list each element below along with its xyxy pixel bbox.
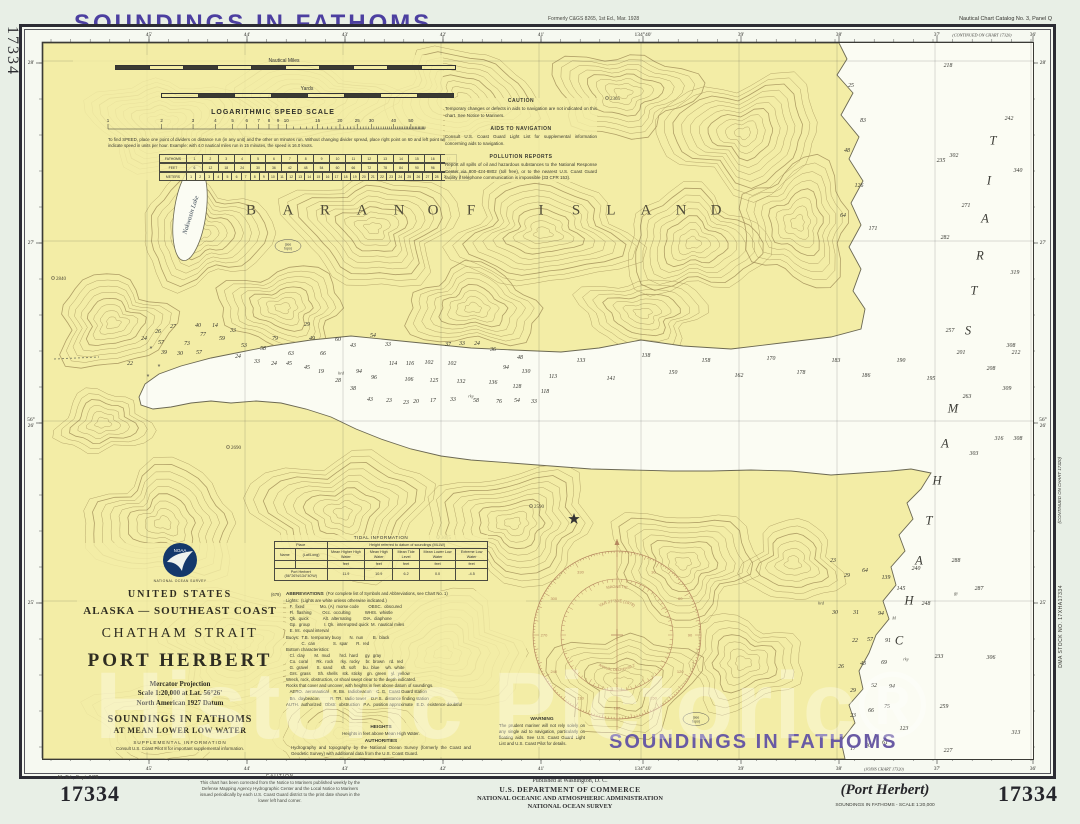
sounding: 263 (963, 394, 972, 400)
footer-caution-block: CAUTION This chart has been corrected fr… (196, 774, 364, 805)
svg-text:180: 180 (614, 706, 621, 711)
chart-number-bottom-right: 17334 (998, 781, 1058, 807)
sounding: 24 (235, 354, 241, 360)
conversion-cell: 66 (346, 163, 362, 172)
conversion-cell: 28 (433, 172, 442, 181)
tidal-row-name: Port Herbert (56°26'N/134°40'W) (275, 568, 328, 580)
sounding: 106 (405, 377, 414, 383)
conversion-cell: 96 (425, 163, 441, 172)
sounding: 139 (882, 575, 891, 581)
strait-name-letter: R (976, 249, 984, 264)
strait-name-letter: T (926, 514, 933, 529)
latitude-label-left: 25' (28, 600, 35, 606)
sounding: 45 (304, 365, 310, 371)
nm-bar-segment (387, 65, 422, 70)
conversion-cell: 12 (287, 172, 296, 181)
conversion-cell: 18 (342, 172, 351, 181)
sounding: 201 (957, 350, 966, 356)
sounding: 48 (517, 355, 523, 361)
tidal-col-latlong: (Lat/Long) (295, 549, 327, 561)
sounding: 130 (522, 369, 531, 375)
latitude-label-right: 28' (1040, 60, 1047, 66)
longitude-label-bottom: 39' (738, 766, 745, 772)
sounding: 94 (889, 684, 895, 690)
heights-body: Heights in feet above Mean High Water. (291, 731, 471, 737)
strait-name-letter: S (965, 324, 971, 339)
sounding: 30 (832, 610, 838, 616)
tidal-col-header: Mean High Water (365, 549, 393, 561)
sounding: 30 (177, 351, 183, 357)
island-name-letter: A (641, 203, 652, 220)
latitude-label-left: 28' (28, 60, 35, 66)
sounding: 319 (1011, 270, 1020, 276)
sounding: 145 (897, 586, 906, 592)
conversion-row-label: FEET (159, 163, 187, 172)
conversion-cell: 11 (278, 172, 287, 181)
svg-text:270: 270 (541, 633, 548, 638)
sounding: 308 (1007, 343, 1016, 349)
sounding: 48 (844, 148, 850, 154)
longitude-label-bottom: 134°40' (635, 766, 652, 772)
sounding: 57 (196, 350, 202, 356)
tidal-col-name: Name (275, 549, 296, 561)
title-soundings-2: AT MEAN LOWER LOW WATER (77, 726, 283, 735)
svg-text:15: 15 (315, 118, 321, 123)
tidal-value-cell: 6.2 (393, 568, 420, 580)
conversion-cell: 60 (330, 163, 346, 172)
latitude-label-right: 27' (1040, 240, 1047, 246)
footer-scale-line: SOUNDINGS IN FATHOMS - SCALE 1:20,000 (790, 803, 980, 808)
sounding: 212 (1012, 350, 1021, 356)
sounding: 43 (367, 397, 373, 403)
sounding: 91 (885, 638, 891, 644)
svg-text:330: 330 (577, 569, 584, 574)
tidal-value-cell: 11.9 (327, 568, 365, 580)
conversion-cell: 24 (235, 163, 251, 172)
aids-title: AIDS TO NAVIGATION (445, 126, 597, 132)
sounding: 64 (840, 213, 846, 219)
sounding: 23 (403, 400, 409, 406)
sounding: 128 (513, 384, 522, 390)
sounding: 233 (935, 654, 944, 660)
svg-text:240: 240 (550, 669, 557, 674)
sounding: 302 (950, 153, 959, 159)
noaa-logo: NOAA (163, 543, 197, 577)
aids-body: Consult U.S. Coast Guard Light List for … (445, 134, 597, 147)
catalog-note: Nautical Chart Catalog No. 3, Panel Q (959, 16, 1052, 22)
island-name-letter: D (711, 203, 722, 220)
conversion-cell: 21 (369, 172, 378, 181)
svg-text:3: 3 (192, 118, 195, 123)
sounding: 64 (862, 568, 868, 574)
title-projection: Mercator Projection Scale 1:20,000 at La… (77, 680, 283, 708)
title-strait: CHATHAM STRAIT (77, 626, 283, 642)
sounding: 69 (881, 660, 887, 666)
strait-name-letter: A (941, 437, 949, 452)
conversion-cell: 1 (187, 154, 203, 163)
sounding: 218 (944, 63, 953, 69)
sounding: 126 (855, 183, 864, 189)
conversion-cell: 9 (314, 154, 330, 163)
sounding: 31 (853, 610, 859, 616)
svg-text:50: 50 (408, 118, 414, 123)
sounding: 43 (350, 343, 356, 349)
sounding: 19 (318, 369, 324, 375)
latitude-label-left: 27' (28, 240, 35, 246)
longitude-label-top: 37' (934, 32, 941, 38)
conversion-row: METERS1234567891011121314151617181920212… (159, 172, 469, 181)
svg-text:8: 8 (268, 118, 271, 123)
conversion-cell: 3 (205, 172, 214, 181)
sounding: 33 (230, 328, 236, 334)
sounding: 63 (288, 351, 294, 357)
island-name-letter: R (320, 203, 330, 220)
strait-name-letter: T (990, 134, 997, 149)
svg-text:2690: 2690 (231, 446, 242, 451)
island-name-letter: S (572, 203, 580, 220)
svg-text:*: * (147, 374, 150, 381)
longitude-label-bottom: 37' (934, 766, 941, 772)
svg-text:6: 6 (245, 118, 248, 123)
port-herbert-subtitle: (Port Herbert) (790, 782, 980, 799)
abbreviations-lines: Lights: (Lights are white unless otherwi… (286, 598, 526, 708)
supplemental-body: Consult U.S. Coast Pilot 8 for important… (77, 746, 283, 752)
strait-name-letter: H (904, 594, 913, 609)
tidal-unit-cell: feet (456, 561, 488, 568)
sounding: 83 (860, 118, 866, 124)
conversion-cell: 13 (378, 154, 394, 163)
conversion-cell: 15 (409, 154, 425, 163)
sounding: 73 (184, 341, 190, 347)
island-name-letter: F (467, 203, 475, 220)
supplemental-title: SUPPLEMENTAL INFORMATION (77, 740, 283, 745)
sounding: 20 (413, 399, 419, 405)
island-name-letter: N (394, 203, 405, 220)
sounding: 183 (832, 358, 841, 364)
bottom-type-label: hrd (818, 601, 824, 606)
tidal-unit-blank (275, 561, 296, 568)
tidal-unit-cell: feet (419, 561, 455, 568)
svg-text:40: 40 (391, 118, 397, 123)
yards-bar-segment (198, 93, 236, 98)
sounding: 53 (241, 343, 247, 349)
strait-name-letter: M (948, 402, 958, 417)
continued-note-top: (CONTINUED ON CHART 17320) (952, 33, 1011, 38)
sounding: 306 (987, 655, 996, 661)
svg-text:NOAA: NOAA (174, 548, 187, 553)
tidal-unit-cell: feet (365, 561, 393, 568)
sounding: 49 (309, 336, 315, 342)
conversion-row: FEET6121824303642485460667278849096102 (159, 163, 469, 172)
svg-text:25: 25 (355, 118, 361, 123)
sounding: 287 (975, 586, 984, 592)
svg-text:*: * (158, 364, 161, 371)
nm-bar-segment (183, 65, 218, 70)
authorities-body: Hydrography and topography by the Nation… (291, 745, 471, 757)
conversion-cell: 16 (323, 172, 332, 181)
island-name-letter: A (283, 203, 294, 220)
longitude-label-bottom: 42' (440, 766, 447, 772)
conversion-cell: 16 (425, 154, 441, 163)
bottom-type-label: gy (954, 591, 958, 596)
conversion-cell: 11 (346, 154, 362, 163)
sounding: 178 (797, 370, 806, 376)
log-speed-scale-ruler: 12345678910152025304050 (73, 117, 443, 137)
conversion-cell: 1 (187, 172, 196, 181)
sounding: 94 (356, 369, 362, 375)
chart-number-bottom-left: 17334 (60, 781, 120, 807)
conversion-row: FATHOMS1234567891011121314151617 (159, 154, 469, 163)
sounding: 28 (335, 378, 341, 384)
nm-bar-segment (115, 65, 150, 70)
sounding: 162 (735, 373, 744, 379)
nos-line: NATIONAL OCEAN SURVEY (415, 803, 725, 810)
conversion-cell: 27 (423, 172, 432, 181)
longitude-label-top: 39' (738, 32, 745, 38)
conversion-cell: 17 (333, 172, 342, 181)
log-speed-scale-title: LOGARITHMIC SPEED SCALE (211, 109, 335, 116)
sounding: 248 (922, 601, 931, 607)
nm-bar-segment (251, 65, 286, 70)
sounding: 102 (425, 360, 434, 366)
sounding: 282 (941, 235, 950, 241)
authorities-title: AUTHORITIES (291, 739, 471, 744)
conversion-cell: 24 (396, 172, 405, 181)
published-at: Published at Washington, D. C. (415, 778, 725, 784)
sounding: 24 (271, 361, 277, 367)
sounding: 242 (1005, 116, 1014, 122)
sounding: 23 (386, 398, 392, 404)
sounding: 60 (335, 337, 341, 343)
sounding: 29 (844, 573, 850, 579)
sounding: 58 (260, 346, 266, 352)
notes-column: CAUTION Temporary changes or defects in … (445, 98, 597, 182)
sounding: 259 (940, 704, 949, 710)
sounding: 190 (897, 358, 906, 364)
sounding: 22 (127, 361, 133, 367)
sounding: 38 (350, 386, 356, 392)
svg-text:10: 10 (284, 118, 290, 123)
sounding: 54 (514, 398, 520, 404)
bottom-type-label: rky (468, 394, 474, 399)
tidal-col-header: Mean Tide Level (393, 549, 420, 561)
conversion-cell: 18 (219, 163, 235, 172)
sounding: 132 (457, 379, 466, 385)
tidal-unit-cell: feet (393, 561, 420, 568)
heights-authorities-block: HEIGHTS Heights in feet above Mean High … (291, 723, 471, 757)
sounding: 308 (1014, 436, 1023, 442)
sounding: 66 (868, 708, 874, 714)
sounding: 33 (459, 341, 465, 347)
sounding: 77 (200, 332, 206, 338)
longitude-label-top: 44' (244, 32, 251, 38)
title-port-name: PORT HERBERT (77, 650, 283, 672)
sounding: 23 (830, 558, 836, 564)
sounding: 26 (155, 329, 161, 335)
latitude-label-right: 25' (1040, 600, 1047, 606)
conversion-cell: 2 (196, 172, 205, 181)
tidal-value-cell: 0.0 (419, 568, 455, 580)
sounding: 79 (272, 336, 278, 342)
conversion-cell: 30 (251, 163, 267, 172)
sounding: 118 (541, 389, 549, 395)
dma-stock-number: DMA STOCK NO. 17XHA17334 (1058, 585, 1064, 668)
sounding: 235 (937, 158, 946, 164)
sounding: 40 (195, 323, 201, 329)
strait-name-letter: A (981, 212, 989, 227)
yards-bar-segment (307, 93, 345, 98)
sounding: 316 (995, 436, 1004, 442)
conversion-cell: 84 (394, 163, 410, 172)
projection-line: Mercator Projection (77, 680, 283, 689)
longitude-label-top: 45' (146, 32, 153, 38)
conversion-cell: 9 (260, 172, 269, 181)
nm-bar-segment (319, 65, 354, 70)
sounding: 150 (669, 370, 678, 376)
nm-bar-segment (217, 65, 252, 70)
sounding: 33 (531, 399, 537, 405)
title-soundings-1: SOUNDINGS IN FATHOMS (77, 714, 283, 725)
nm-bar-segment (421, 65, 456, 70)
svg-text:30: 30 (651, 569, 656, 574)
noaa-line: NATIONAL OCEANIC AND ATMOSPHERIC ADMINIS… (415, 795, 725, 802)
bottom-type-label: hrd (338, 371, 344, 376)
tidal-footnote: (679) (271, 592, 281, 597)
bottom-type-label: M (892, 616, 896, 621)
tidal-information-table: TIDAL INFORMATION Place Height referred … (274, 535, 488, 581)
conversion-cell: 4 (214, 172, 223, 181)
tidal-height-header: Height referred to datum of soundings (M… (327, 542, 488, 549)
sounding: 170 (767, 356, 776, 362)
sounding: 123 (900, 726, 909, 732)
sounding: 33 (385, 342, 391, 348)
sounding: 23 (850, 713, 856, 719)
conversion-cell: 20 (360, 172, 369, 181)
island-name-letter: N (676, 203, 687, 220)
sounding: 288 (952, 558, 961, 564)
conversion-cell: 48 (298, 163, 314, 172)
sounding: 141 (607, 376, 616, 382)
log-speed-scale-note: To find SPEED, place one point of divide… (108, 137, 456, 150)
sounding: 138 (642, 353, 651, 359)
yards-bar-segment (234, 93, 272, 98)
sounding: 96 (371, 375, 377, 381)
bottom-type-label: rky (903, 657, 909, 662)
svg-text:2: 2 (160, 118, 163, 123)
warning-title: WARNING (499, 717, 585, 722)
strait-name-letter: H (932, 474, 941, 489)
yards-bar-segment (161, 93, 199, 98)
nautical-miles-label: Nautical Miles (268, 58, 299, 64)
nautical-chart-sheet: SOUNDINGS IN FATHOMS Formerly C&GS 8265,… (0, 0, 1080, 824)
sounding: 133 (577, 358, 586, 364)
caution-title: CAUTION (445, 98, 597, 104)
sounding: 22 (852, 638, 858, 644)
sounding: 94 (878, 611, 884, 617)
tidal-caption: TIDAL INFORMATION (274, 535, 488, 540)
tidal-unit-blank2 (295, 561, 327, 568)
title-region: ALASKA — SOUTHEAST COAST (77, 605, 283, 617)
map-area: ***28402690307525902365(seetopo)(seetopo… (42, 42, 1034, 760)
sounding: 208 (987, 366, 996, 372)
conversion-cell: 22 (378, 172, 387, 181)
sounding: 37 (445, 342, 451, 348)
longitude-label-top: 36' (1030, 32, 1037, 38)
conversion-cell: 13 (296, 172, 305, 181)
island-name-letter: A (357, 203, 368, 220)
datum-line: North American 1927 Datum (77, 699, 283, 708)
conversion-cell: 25 (405, 172, 414, 181)
sounding: 186 (862, 373, 871, 379)
svg-text:9: 9 (277, 118, 280, 123)
island-name-letter: B (246, 203, 256, 220)
island-name-letter: I (539, 203, 544, 220)
sounding: 52 (871, 683, 877, 689)
noaa-gull-icon: NOAA (163, 543, 197, 577)
sounding: 125 (430, 378, 439, 384)
sounding: 171 (869, 226, 878, 232)
longitude-label-top: 43' (342, 32, 349, 38)
conversion-cell: 90 (409, 163, 425, 172)
abbreviations-title: ABBREVIATIONS (For complete list of Symb… (286, 591, 526, 596)
sounding: 27 (170, 324, 176, 330)
sounding: 45 (286, 361, 292, 367)
sounding: 39 (161, 350, 167, 356)
strait-name-letter: T (971, 284, 978, 299)
svg-text:120: 120 (677, 669, 684, 674)
sounding: 14 (212, 323, 218, 329)
sounding: 75 (884, 704, 890, 710)
svg-text:150: 150 (650, 696, 657, 701)
conversion-cell: 12 (203, 163, 219, 172)
joins-note-bottom: (JOINS CHART 17320) (864, 767, 904, 772)
sounding: 33 (254, 359, 260, 365)
svg-text:90: 90 (688, 633, 693, 638)
longitude-label-bottom: 44' (244, 766, 251, 772)
longitude-label-top: 134°40' (635, 32, 652, 38)
nm-bar-segment (285, 65, 320, 70)
sounding: 195 (927, 376, 936, 382)
dept-commerce: U.S. DEPARTMENT OF COMMERCE (415, 785, 725, 794)
pollution-title: POLLUTION REPORTS (445, 154, 597, 160)
sounding: 29 (850, 688, 856, 694)
soundings-in-fathoms-banner: SOUNDINGS IN FATHOMS (609, 731, 898, 754)
conversion-cell: 23 (387, 172, 396, 181)
conversion-cell: 12 (362, 154, 378, 163)
tidal-value-cell: 10.9 (365, 568, 393, 580)
conversion-row-label: FATHOMS (159, 154, 187, 163)
pollution-body: Report all spills of oil and hazardous s… (445, 162, 597, 182)
sounding: 59 (219, 336, 225, 342)
longitude-label-bottom: 43' (342, 766, 349, 772)
svg-text:2365: 2365 (610, 97, 621, 102)
sounding: 66 (320, 351, 326, 357)
svg-text:210: 210 (577, 696, 584, 701)
tidal-col-header: Mean Lower Low Water (419, 549, 455, 561)
sounding: 158 (702, 358, 711, 364)
chart-frame: 45'44'43'42'41'134°40'39'38'37'36'45'44'… (19, 24, 1056, 779)
sounding: 29 (304, 322, 310, 328)
unit-conversion-table: FATHOMS1234567891011121314151617FEET6121… (159, 154, 469, 181)
sounding: 94 (503, 365, 509, 371)
chart-title-block: NOAA NATIONAL OCEAN SURVEY UNITED STATES… (77, 543, 283, 752)
sounding: 114 (389, 361, 397, 367)
conversion-cell: 15 (314, 172, 323, 181)
sounding: 271 (962, 203, 971, 209)
sounding: 113 (549, 374, 557, 380)
conversion-cell: 5 (251, 154, 267, 163)
warning-body: The prudent mariner will not rely solely… (499, 723, 585, 747)
